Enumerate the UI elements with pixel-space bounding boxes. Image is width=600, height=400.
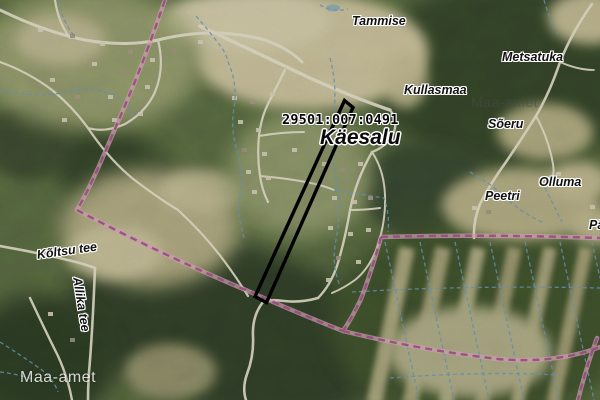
aerial-map bbox=[0, 0, 600, 400]
map-canvas[interactable]: Tammise Metsatuka Kullasmaa Maa-amet Sõe… bbox=[0, 0, 600, 400]
